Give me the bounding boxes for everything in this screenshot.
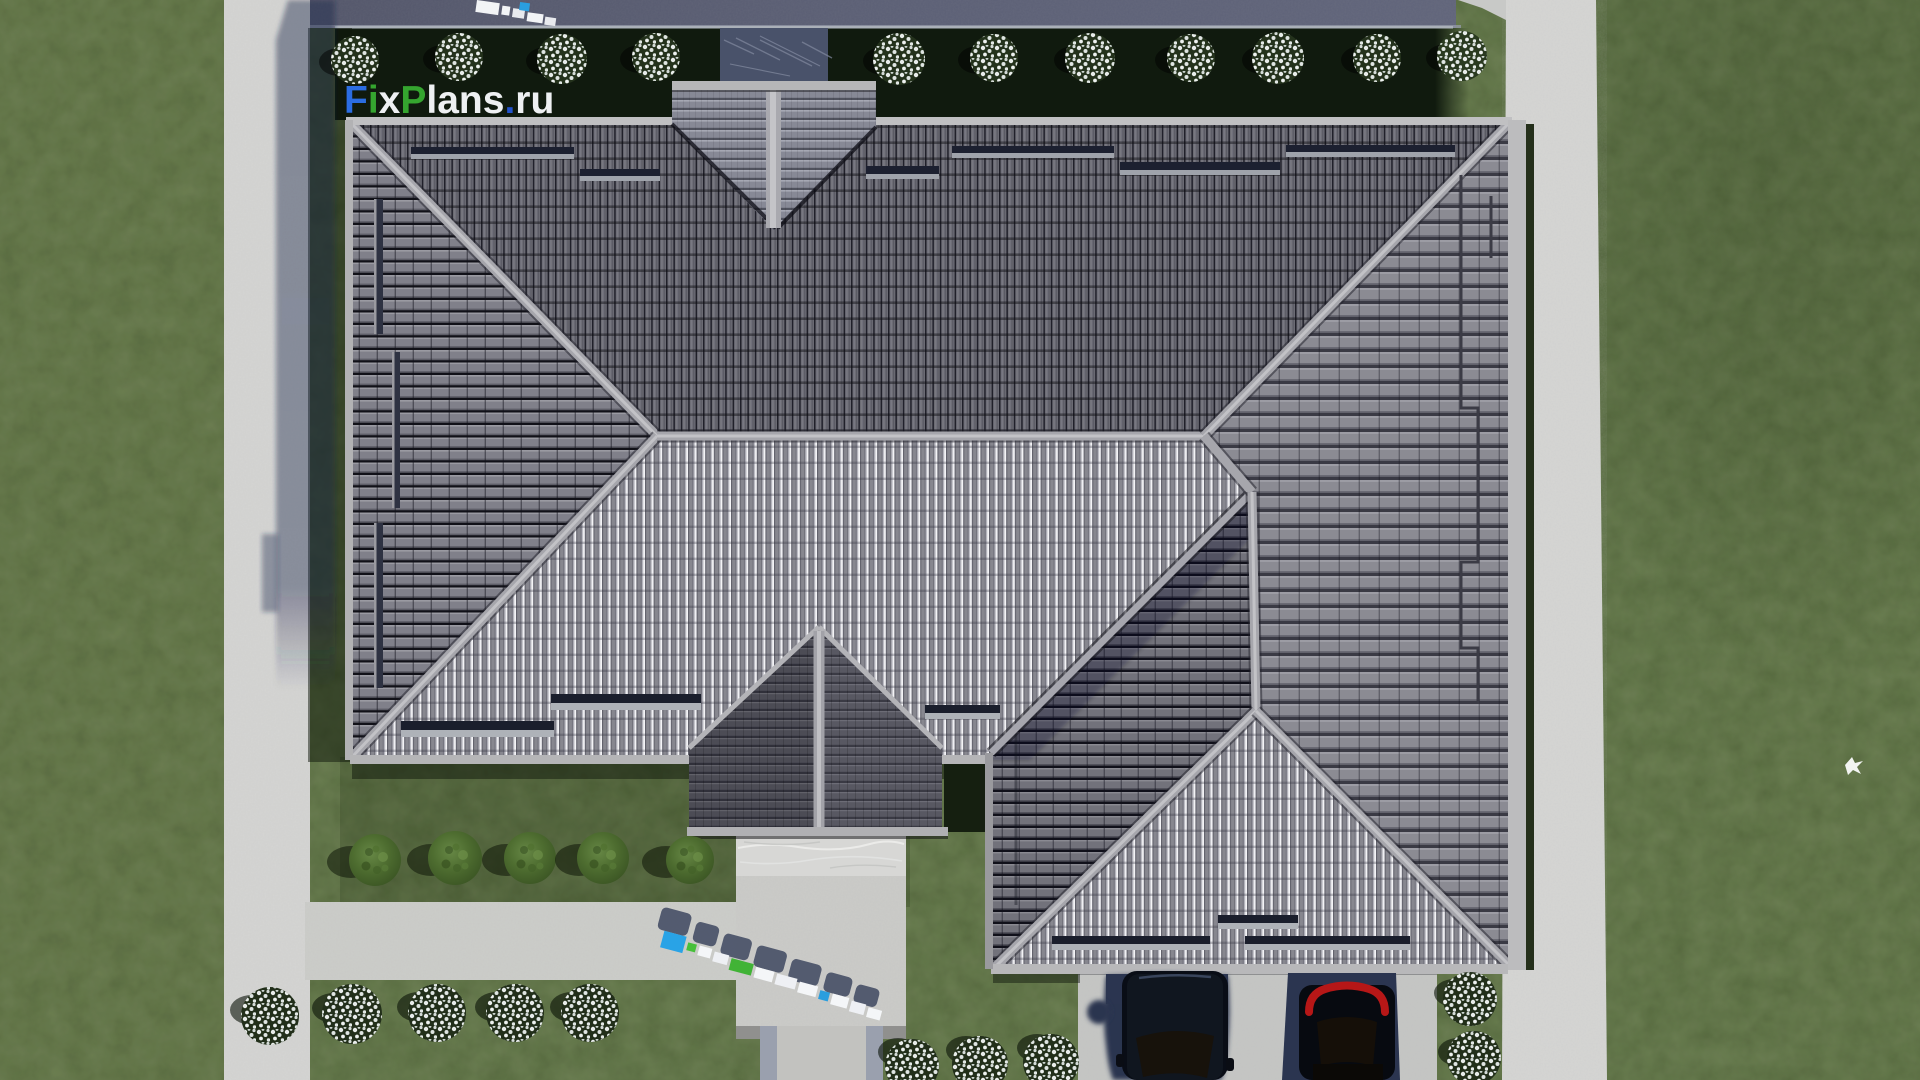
svg-text:FixPlans.ru: FixPlans.ru <box>344 79 554 122</box>
